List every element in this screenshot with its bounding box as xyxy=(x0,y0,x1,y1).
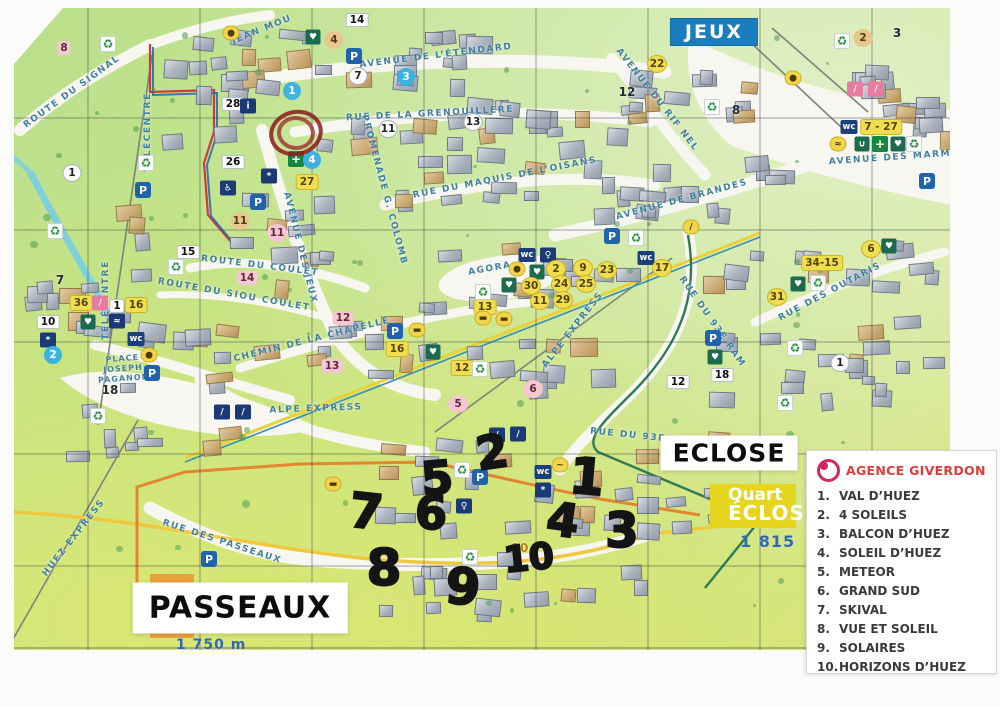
pictogram-icon: * xyxy=(40,333,56,348)
scan-margin-left xyxy=(0,0,14,707)
tree xyxy=(753,604,756,607)
map-number-marker: 12 xyxy=(333,311,354,325)
tree xyxy=(95,111,99,115)
defibrillator-heart-icon: ♥ xyxy=(426,345,441,360)
tree xyxy=(627,268,633,274)
building xyxy=(916,97,940,110)
pictogram-icon: ♀ xyxy=(456,499,472,514)
building xyxy=(575,479,600,499)
building xyxy=(443,57,457,69)
pictogram-icon: / xyxy=(235,405,251,420)
building xyxy=(716,336,738,351)
building xyxy=(399,354,413,374)
building xyxy=(726,106,744,122)
map-number-marker: 31 xyxy=(767,288,787,306)
tree xyxy=(796,312,801,317)
building xyxy=(412,118,438,135)
building xyxy=(466,36,493,55)
building xyxy=(125,442,139,452)
building xyxy=(450,79,465,97)
building xyxy=(447,113,470,130)
building xyxy=(256,78,282,96)
handwritten-number: 3 xyxy=(605,507,638,555)
street-label: RUE DU MAQUIS DE L’OISANS xyxy=(412,155,598,201)
street-label: RUE DES PASSEAUX xyxy=(161,518,283,566)
building xyxy=(629,101,643,112)
street-label: AGORA xyxy=(468,260,513,277)
building xyxy=(628,86,657,100)
tree xyxy=(517,400,523,406)
tree xyxy=(357,260,363,266)
building xyxy=(396,190,410,207)
building xyxy=(184,328,211,346)
tree xyxy=(504,67,509,72)
building xyxy=(852,72,867,90)
building xyxy=(120,383,136,394)
legend-item: 2.4 SOLEILS xyxy=(817,506,988,525)
building xyxy=(709,392,736,409)
building xyxy=(459,33,477,48)
defibrillator-heart-icon: ∪ xyxy=(855,137,870,152)
building xyxy=(481,293,507,307)
map-number-marker: 11 xyxy=(530,292,550,310)
building xyxy=(871,280,899,293)
building xyxy=(583,160,602,180)
building xyxy=(645,94,661,113)
building xyxy=(430,566,443,579)
handwritten-number: 1 xyxy=(567,451,606,504)
building xyxy=(202,439,222,456)
legend-item-number: 8. xyxy=(817,620,839,639)
service-icon: ▬ xyxy=(475,311,492,326)
tree xyxy=(647,222,651,226)
map-number-marker: 2 xyxy=(546,260,566,278)
building xyxy=(524,591,550,608)
building xyxy=(45,292,59,310)
recycle-icon: ♻ xyxy=(777,395,793,411)
handwritten-number: 7 xyxy=(347,486,385,537)
building xyxy=(818,354,844,368)
map-number-marker: 17 xyxy=(652,259,672,277)
building xyxy=(284,210,303,222)
building xyxy=(849,354,864,371)
map-number-marker: 34-15 xyxy=(801,255,843,271)
tree xyxy=(262,274,268,280)
ski-school-icon: / xyxy=(868,82,884,97)
legend-item-label: SKIVAL xyxy=(839,601,887,620)
building xyxy=(872,389,893,407)
wc-icon: wc xyxy=(128,332,145,346)
street-label: CHEMIN DE LA CHAPELLE xyxy=(233,316,392,365)
service-icon: ≈ xyxy=(830,137,847,152)
legend-item-number: 2. xyxy=(817,506,839,525)
street-label: ROUTE DU SIGNAL xyxy=(22,54,122,131)
building xyxy=(209,376,226,394)
map-number-marker: 13 xyxy=(474,299,497,315)
building xyxy=(133,426,149,446)
building xyxy=(37,281,54,296)
tree xyxy=(510,608,515,613)
tree xyxy=(183,213,189,219)
street-label: TÉLÉCENTRE xyxy=(143,92,153,172)
building xyxy=(25,295,43,312)
building xyxy=(795,251,809,266)
building xyxy=(115,204,142,222)
tree xyxy=(175,545,180,550)
tree xyxy=(288,288,293,293)
building xyxy=(531,288,555,307)
building xyxy=(880,239,904,252)
map-number-marker: 10 xyxy=(512,541,529,555)
building xyxy=(560,588,576,603)
building xyxy=(639,190,667,204)
building xyxy=(735,100,751,115)
building xyxy=(524,161,545,175)
building xyxy=(307,353,328,367)
tree xyxy=(43,214,50,221)
building xyxy=(845,358,864,373)
map-number-marker: 13 xyxy=(322,359,343,373)
building xyxy=(134,232,151,251)
building xyxy=(375,507,396,525)
recycle-icon: ♻ xyxy=(454,462,470,478)
building xyxy=(400,129,423,144)
map-number-marker: 6 xyxy=(861,240,881,258)
building xyxy=(924,270,939,286)
wc-icon: wc xyxy=(841,120,858,134)
tree xyxy=(30,241,37,248)
defibrillator-heart-icon: ♥ xyxy=(791,277,806,292)
building xyxy=(664,91,691,106)
recycle-icon: ♻ xyxy=(462,549,478,565)
building xyxy=(216,323,241,338)
building xyxy=(108,310,131,322)
map-number-marker: 11 xyxy=(267,224,287,242)
legend-title: AGENCE GIVERDON xyxy=(817,459,988,482)
street-label: AVENUE DE L’ÉTENDARD xyxy=(359,42,513,71)
building xyxy=(636,449,659,464)
legend-item: 9.SOLAIRES xyxy=(817,639,988,658)
building xyxy=(741,81,759,94)
service-icon: ▬ xyxy=(496,312,513,327)
handwritten-number: 9 xyxy=(443,561,482,614)
building xyxy=(419,302,436,313)
tree xyxy=(585,89,589,93)
building xyxy=(924,103,946,119)
wc-icon: wc xyxy=(638,251,655,265)
building xyxy=(760,333,781,345)
building xyxy=(602,177,615,194)
parking-icon: P xyxy=(135,182,151,198)
street-label: AVENUE DE BRANDES xyxy=(615,178,749,223)
building xyxy=(699,70,713,85)
legend-item-number: 1. xyxy=(817,487,839,506)
street-label: ROUTE DU SIOU COULET xyxy=(157,277,311,314)
tree xyxy=(795,160,798,163)
service-icon: ~ xyxy=(552,458,569,473)
building xyxy=(424,171,445,184)
defibrillator-heart-icon: ♥ xyxy=(882,239,897,254)
building xyxy=(574,111,589,128)
map-number-marker: 22 xyxy=(647,55,667,73)
map-number-marker: 14 xyxy=(346,13,369,27)
building xyxy=(393,513,416,523)
building xyxy=(621,104,640,116)
pictogram-icon: i xyxy=(240,99,256,114)
map-number-marker: 36 xyxy=(70,295,93,311)
tree xyxy=(672,418,678,424)
tree xyxy=(778,578,784,584)
map-number-marker: 1 xyxy=(283,82,301,100)
service-icon: ▬ xyxy=(409,323,426,338)
building xyxy=(254,344,281,361)
building xyxy=(380,443,405,456)
building xyxy=(426,602,441,615)
map-number-marker: 8 xyxy=(57,41,70,55)
building xyxy=(617,190,631,208)
building xyxy=(439,522,458,540)
building xyxy=(577,588,596,603)
building xyxy=(875,383,888,398)
map-number-marker: 4 xyxy=(325,31,344,49)
legend-item: 10.HORIZONS D’HUEZ xyxy=(817,658,988,677)
map-number-marker: 1 xyxy=(63,164,82,182)
recycle-icon: ♻ xyxy=(787,340,803,356)
building xyxy=(525,109,551,129)
map-number-marker: 6 xyxy=(523,380,543,398)
building xyxy=(621,565,643,582)
tree xyxy=(473,165,477,169)
building xyxy=(518,339,535,350)
building xyxy=(557,269,581,283)
building xyxy=(309,252,330,265)
building xyxy=(642,206,657,219)
legend-agency-name: AGENCE GIVERDON xyxy=(846,463,986,478)
tree xyxy=(307,332,311,336)
building xyxy=(192,36,214,52)
service-icon: ● xyxy=(785,71,802,86)
building xyxy=(902,103,927,115)
map-number-marker: 26 xyxy=(222,155,245,169)
map-number-marker: 12 xyxy=(619,85,636,99)
building xyxy=(475,574,497,590)
building xyxy=(27,286,48,303)
building xyxy=(394,65,418,84)
pictogram-icon: ♿ xyxy=(220,181,236,196)
map-number-marker: 12 xyxy=(667,375,690,389)
map-number-marker: 7 xyxy=(349,67,368,85)
ski-school-icon: / xyxy=(92,296,108,311)
building xyxy=(665,496,686,508)
building xyxy=(514,282,532,297)
building xyxy=(465,472,479,491)
tree xyxy=(265,35,269,39)
building xyxy=(351,118,366,136)
legend-item: 8.VUE ET SOLEIL xyxy=(817,620,988,639)
building xyxy=(438,249,462,262)
legend-item: 6.GRAND SUD xyxy=(817,582,988,601)
building xyxy=(379,605,393,617)
building xyxy=(436,438,464,453)
tree xyxy=(614,221,620,227)
quartier-passeaux-letter: P xyxy=(158,602,173,626)
building xyxy=(477,147,506,164)
building xyxy=(425,32,443,44)
building xyxy=(780,381,803,393)
building xyxy=(594,268,615,282)
parking-icon: P xyxy=(919,173,935,189)
building xyxy=(106,446,121,458)
parking-icon: P xyxy=(472,469,488,485)
map-number-marker: 25 xyxy=(576,275,596,293)
building xyxy=(451,55,467,70)
map-number-marker: 11 xyxy=(379,120,398,138)
building xyxy=(820,392,834,411)
building xyxy=(137,321,167,343)
building xyxy=(635,204,659,222)
legend-item: 7.SKIVAL xyxy=(817,601,988,620)
service-icon: ● xyxy=(141,348,158,363)
street-label: ALPE EXPRESS xyxy=(269,402,362,415)
building xyxy=(580,470,603,487)
building xyxy=(914,116,931,130)
legend-item-label: SOLAIRES xyxy=(839,639,905,658)
building xyxy=(726,278,746,290)
building xyxy=(475,439,489,453)
building xyxy=(211,56,228,70)
legend-item-number: 7. xyxy=(817,601,839,620)
tree xyxy=(182,32,188,38)
street-label: ALPE EXPRESS xyxy=(540,290,605,370)
building xyxy=(447,137,463,151)
map-number-marker: 15 xyxy=(177,245,200,259)
area-label-jeux: JEUX xyxy=(671,19,757,45)
building xyxy=(84,325,112,338)
building xyxy=(418,156,444,168)
map-number-marker: 18 xyxy=(102,383,119,397)
building xyxy=(128,216,145,234)
building xyxy=(163,60,189,80)
street-label: JEAN MOU xyxy=(231,13,294,46)
agence-giverdon-logo-icon xyxy=(817,459,840,482)
building xyxy=(219,426,244,442)
tree xyxy=(774,35,780,41)
handwritten-number: 4 xyxy=(544,495,582,545)
building xyxy=(319,250,335,261)
building xyxy=(104,429,117,448)
building xyxy=(804,251,819,271)
building xyxy=(568,522,590,536)
map-number-marker: 1 xyxy=(109,299,124,313)
recycle-icon: ♻ xyxy=(47,223,63,239)
building xyxy=(467,346,483,361)
building xyxy=(865,65,889,81)
tree xyxy=(793,322,800,329)
scan-corner-wedge xyxy=(0,0,70,80)
building xyxy=(878,88,902,103)
legend-item: 4.SOLEIL D’HUEZ xyxy=(817,544,988,563)
map-number-marker: 7 xyxy=(56,273,64,287)
building xyxy=(188,60,207,75)
building xyxy=(303,252,319,267)
building xyxy=(196,86,213,105)
pictogram-icon: ♀ xyxy=(540,248,556,263)
building xyxy=(637,474,661,486)
building xyxy=(230,28,252,46)
building xyxy=(531,110,558,128)
building xyxy=(241,192,268,207)
building xyxy=(409,47,422,58)
tree xyxy=(244,427,250,433)
building xyxy=(519,370,547,383)
building xyxy=(501,243,520,257)
building xyxy=(863,341,891,357)
building xyxy=(714,207,730,224)
building xyxy=(912,123,926,137)
building xyxy=(275,279,291,299)
building xyxy=(137,438,163,448)
building xyxy=(431,30,458,46)
service-icon: ● xyxy=(223,26,240,41)
handwritten-number: 10 xyxy=(502,538,556,579)
building xyxy=(637,497,659,514)
building xyxy=(861,84,887,100)
building xyxy=(593,207,615,225)
handwritten-number: 6 xyxy=(415,490,447,536)
building xyxy=(205,371,233,384)
building xyxy=(485,453,513,469)
parking-icon: P xyxy=(387,323,403,339)
building xyxy=(266,218,287,233)
street-label: HUEZ EXPRESS xyxy=(41,497,107,578)
tree xyxy=(794,259,800,265)
legend-items: 1.VAL D’HUEZ2.4 SOLEILS3.BALCON D’HUEZ4.… xyxy=(817,487,988,677)
building xyxy=(765,175,786,185)
street-label: RUE DE LA GRENOUILLÈRE xyxy=(346,105,515,124)
street-label: RUE DU 93E RAM xyxy=(590,426,699,447)
scanned-resort-map-page: ROUTE DU SIGNALTÉLÉCENTRETÉLÉCENTREJEAN … xyxy=(0,0,1000,707)
building xyxy=(616,268,641,282)
building xyxy=(214,352,231,364)
building xyxy=(886,242,915,260)
building xyxy=(213,125,237,144)
building xyxy=(614,487,633,502)
map-number-marker: 18 xyxy=(711,368,734,382)
building xyxy=(447,155,472,174)
building xyxy=(723,263,750,282)
street-label: ROUTE DU COULET xyxy=(200,254,319,278)
handwritten-number: 5 xyxy=(419,454,455,503)
parking-icon: P xyxy=(346,48,362,64)
building xyxy=(528,379,548,399)
building xyxy=(436,500,452,513)
building xyxy=(629,69,654,89)
building xyxy=(846,269,870,287)
building xyxy=(524,191,539,201)
pictogram-icon: / xyxy=(510,427,526,442)
tree xyxy=(661,434,664,437)
building xyxy=(506,570,521,581)
building xyxy=(368,370,394,380)
building xyxy=(421,566,448,582)
tree xyxy=(486,600,492,606)
building xyxy=(497,552,515,567)
defibrillator-heart-icon: ♥ xyxy=(530,265,545,280)
building xyxy=(288,223,316,237)
recycle-icon: ♻ xyxy=(906,136,922,152)
building xyxy=(750,250,765,261)
building xyxy=(59,288,86,304)
